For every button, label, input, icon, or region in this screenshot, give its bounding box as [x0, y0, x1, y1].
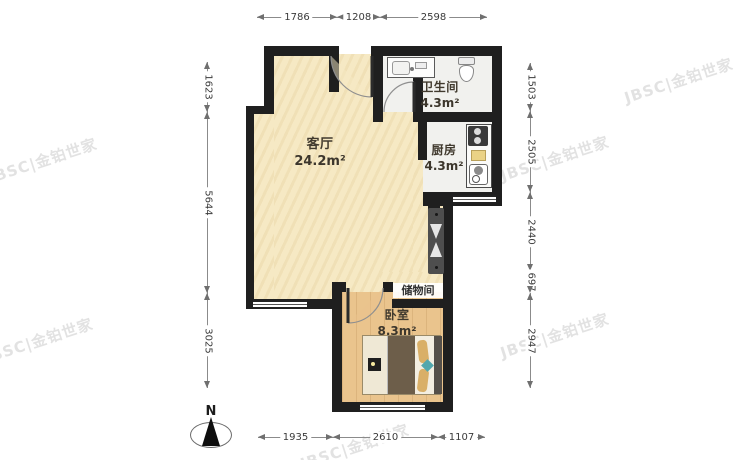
wall — [246, 106, 254, 309]
wall — [413, 112, 502, 122]
room-label-living: 客厅 24.2m² — [260, 137, 380, 171]
wall — [371, 46, 502, 56]
room-area: 8.3m² — [357, 324, 437, 340]
shaft-x-icon — [430, 224, 442, 239]
wall — [373, 46, 383, 122]
room-area: 4.3m² — [398, 96, 482, 112]
dimension-value: 3025 — [203, 325, 214, 356]
wall — [264, 46, 339, 56]
bed-blanket — [388, 336, 415, 394]
faucet — [472, 175, 480, 183]
dimension-value: 1208 — [343, 12, 374, 23]
dimension-bottom-3: 1107 — [438, 437, 485, 438]
tv-dot — [371, 362, 375, 366]
dimension-value: 2610 — [370, 432, 401, 443]
window — [453, 195, 496, 204]
room-name: 卧室 — [357, 308, 437, 324]
wall — [383, 282, 393, 292]
wall — [392, 299, 443, 308]
dimension-top-3: 2598 — [380, 17, 487, 18]
dimension-top-2: 1208 — [337, 17, 380, 18]
room-label-kitchen: 厨房 4.3m² — [402, 143, 486, 174]
shaft-screw — [435, 266, 438, 269]
bathroom-vanity — [387, 57, 435, 78]
shaft-x-icon — [430, 242, 442, 257]
dimension-value: 1107 — [446, 432, 477, 443]
room-label-bathroom: 卫生间 4.3m² — [398, 80, 482, 111]
wall — [332, 282, 346, 292]
dimension-bottom-1: 1935 — [258, 437, 333, 438]
north-arrow-icon — [202, 417, 220, 446]
watermark: JBSC|金铂世家 — [622, 53, 736, 108]
north-compass: N — [189, 404, 233, 456]
dimension-left-3: 3025 — [207, 293, 208, 388]
dimension-left-1: 1623 — [207, 62, 208, 112]
watermark: JBSC|金铂世家 — [0, 133, 100, 188]
room-name: 卫生间 — [398, 80, 482, 96]
floor-plan-image: JBSC|金铂世家 JBSC|金铂世家 JBSC|金铂世家 JBSC|金铂世家 … — [0, 0, 746, 460]
wall — [329, 46, 339, 92]
watermark: JBSC|金铂世家 — [0, 313, 96, 368]
dimension-value: 1786 — [281, 12, 312, 23]
sink-bowl — [392, 61, 410, 75]
watermark: JBSC|金铂世家 — [498, 131, 612, 186]
dimension-value: 2505 — [526, 136, 537, 167]
dimension-value: 1503 — [526, 71, 537, 102]
dimension-value: 5644 — [203, 187, 214, 218]
duct-shaft — [428, 208, 444, 274]
room-name: 厨房 — [402, 143, 486, 159]
dimension-value: 2947 — [526, 325, 537, 356]
room-area: 4.3m² — [402, 159, 486, 175]
dimension-right-2: 2505 — [530, 111, 531, 192]
watermark: JBSC|金铂世家 — [498, 308, 612, 363]
bed — [362, 335, 441, 395]
dimension-right-1: 1503 — [530, 63, 531, 111]
dimension-value: 2598 — [418, 12, 449, 23]
room-area: 24.2m² — [260, 154, 380, 171]
dimension-value: 2440 — [526, 216, 537, 247]
shaft-screw — [435, 213, 438, 216]
living-room-floor — [254, 106, 274, 301]
dimension-left-2: 5644 — [207, 112, 208, 293]
bed-side-panel — [363, 336, 388, 394]
bed-headboard — [434, 336, 442, 394]
dimension-right-5: 2947 — [530, 293, 531, 388]
wall — [332, 282, 342, 412]
dimension-value: 1935 — [280, 432, 311, 443]
window — [360, 403, 425, 412]
room-label-storage: 储物间 — [393, 283, 443, 298]
dimension-right-3: 2440 — [530, 192, 531, 271]
wall — [264, 46, 274, 114]
burner — [474, 128, 481, 135]
dimension-bottom-2: 2610 — [333, 437, 438, 438]
room-name: 客厅 — [260, 137, 380, 154]
wall — [492, 46, 502, 206]
toilet-tank — [458, 57, 475, 65]
dimension-top-1: 1786 — [257, 17, 337, 18]
dimension-value: 1623 — [203, 71, 214, 102]
bed-tv-icon — [368, 358, 381, 371]
soap-tray — [415, 62, 427, 69]
dimension-value: 697 — [526, 269, 537, 294]
faucet-dot — [410, 67, 414, 71]
window — [253, 300, 307, 309]
wall — [443, 196, 453, 412]
dimension-right-4: 697 — [530, 271, 531, 293]
room-label-bedroom: 卧室 8.3m² — [357, 308, 437, 339]
